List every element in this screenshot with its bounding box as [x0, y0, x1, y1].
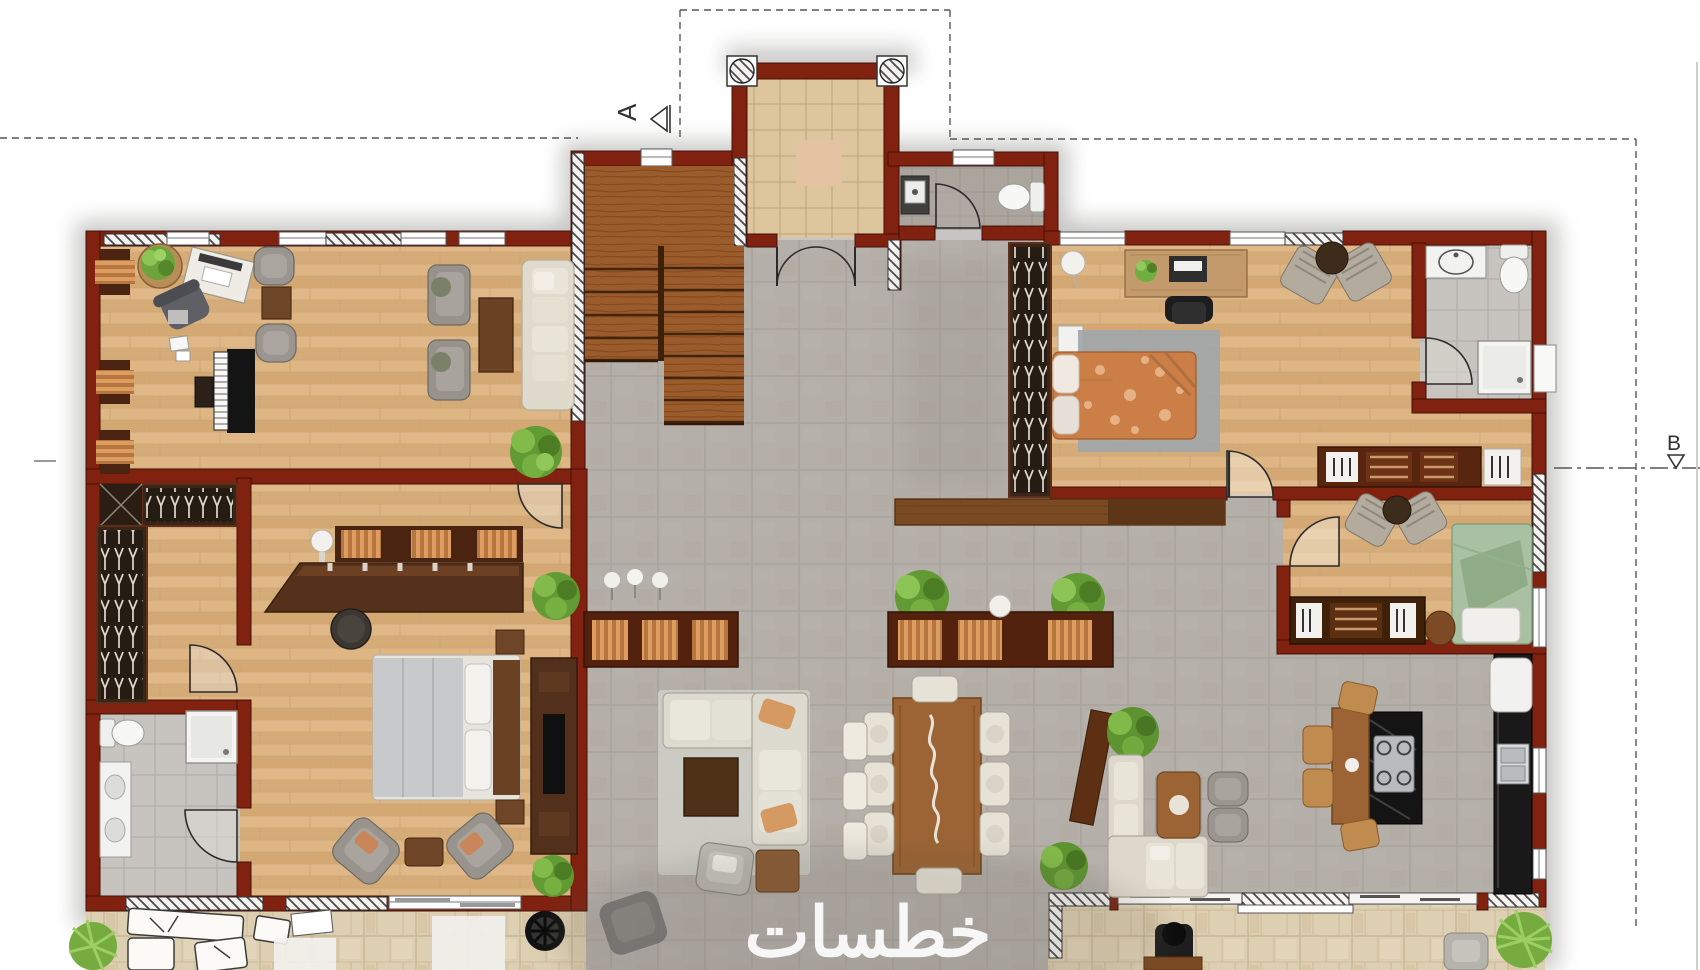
svg-text:A: A: [612, 103, 642, 121]
svg-text:B: B: [1667, 432, 1681, 455]
svg-text:خطسات: خطسات: [745, 894, 992, 970]
